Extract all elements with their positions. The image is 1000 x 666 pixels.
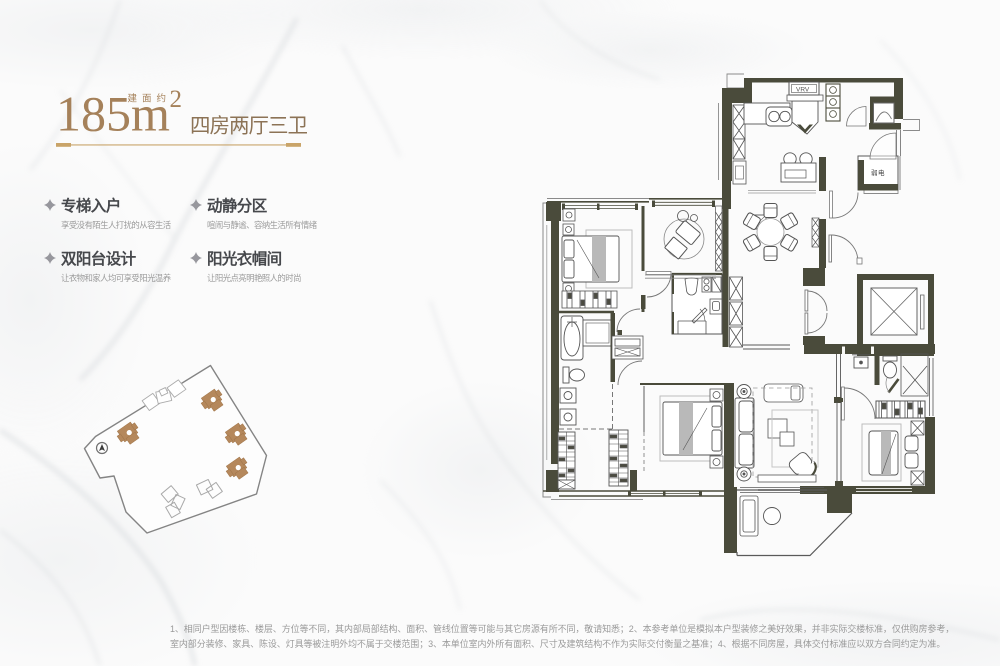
svg-text:VRV: VRV xyxy=(796,87,810,94)
svg-text:专梯入户: 专梯入户 xyxy=(61,196,121,215)
svg-text:阳光衣帽间: 阳光衣帽间 xyxy=(207,249,282,268)
svg-text:让阳光点亮明艳照人的时尚: 让阳光点亮明艳照人的时尚 xyxy=(207,273,301,283)
svg-text:双阳台设计: 双阳台设计 xyxy=(61,249,137,268)
svg-text:喧闹与静谧、容纳生活所有情绪: 喧闹与静谧、容纳生活所有情绪 xyxy=(207,220,318,230)
svg-text:室内部分装修、家具、陈设、灯具等被注明外均不属于交楼范围；3: 室内部分装修、家具、陈设、灯具等被注明外均不属于交楼范围；3、本单位室内外所有面… xyxy=(170,638,945,649)
svg-text:四房两厅三卫: 四房两厅三卫 xyxy=(190,115,307,138)
svg-text:建面约: 建面约 xyxy=(128,93,172,105)
svg-text:享受没有陌生人打扰的从容生活: 享受没有陌生人打扰的从容生活 xyxy=(61,220,172,230)
svg-text:弱电: 弱电 xyxy=(871,168,885,177)
svg-text:1、相同户型因楼栋、楼层、方位等不同，其内部局部结构、面积、: 1、相同户型因楼栋、楼层、方位等不同，其内部局部结构、面积、管线位置等可能与其它… xyxy=(170,623,954,634)
svg-text:2: 2 xyxy=(170,86,183,113)
svg-text:动静分区: 动静分区 xyxy=(207,196,268,215)
svg-text:让衣物和家人均可享受阳光温养: 让衣物和家人均可享受阳光温养 xyxy=(61,273,172,283)
